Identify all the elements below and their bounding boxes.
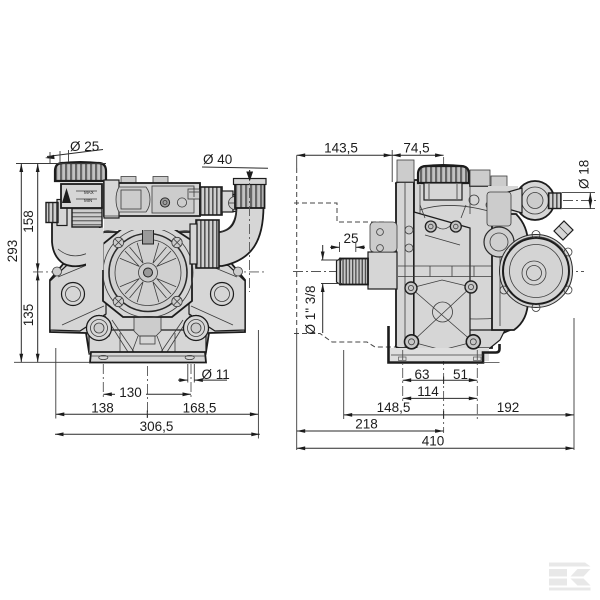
svg-text:114: 114 [417,384,439,399]
svg-text:168,5: 168,5 [183,400,217,415]
svg-text:Ø 40: Ø 40 [203,152,232,167]
svg-text:Ø 18: Ø 18 [577,160,592,189]
svg-text:293: 293 [5,240,20,263]
svg-text:135: 135 [21,304,36,327]
svg-text:74,5: 74,5 [403,140,429,155]
svg-text:63: 63 [414,367,429,382]
svg-text:306,5: 306,5 [140,419,174,434]
svg-text:158: 158 [21,210,36,233]
svg-text:138: 138 [91,400,114,415]
svg-text:192: 192 [497,400,520,415]
svg-text:218: 218 [355,416,378,431]
svg-text:148,5: 148,5 [377,400,411,415]
svg-text:Ø 1" 3/8: Ø 1" 3/8 [303,285,318,334]
svg-text:MAX: MAX [84,190,94,195]
svg-text:MIN: MIN [84,198,92,203]
svg-text:51: 51 [453,367,468,382]
svg-text:25: 25 [343,231,358,246]
svg-text:143,5: 143,5 [324,140,358,155]
svg-text:130: 130 [119,385,142,400]
svg-text:410: 410 [422,433,445,448]
